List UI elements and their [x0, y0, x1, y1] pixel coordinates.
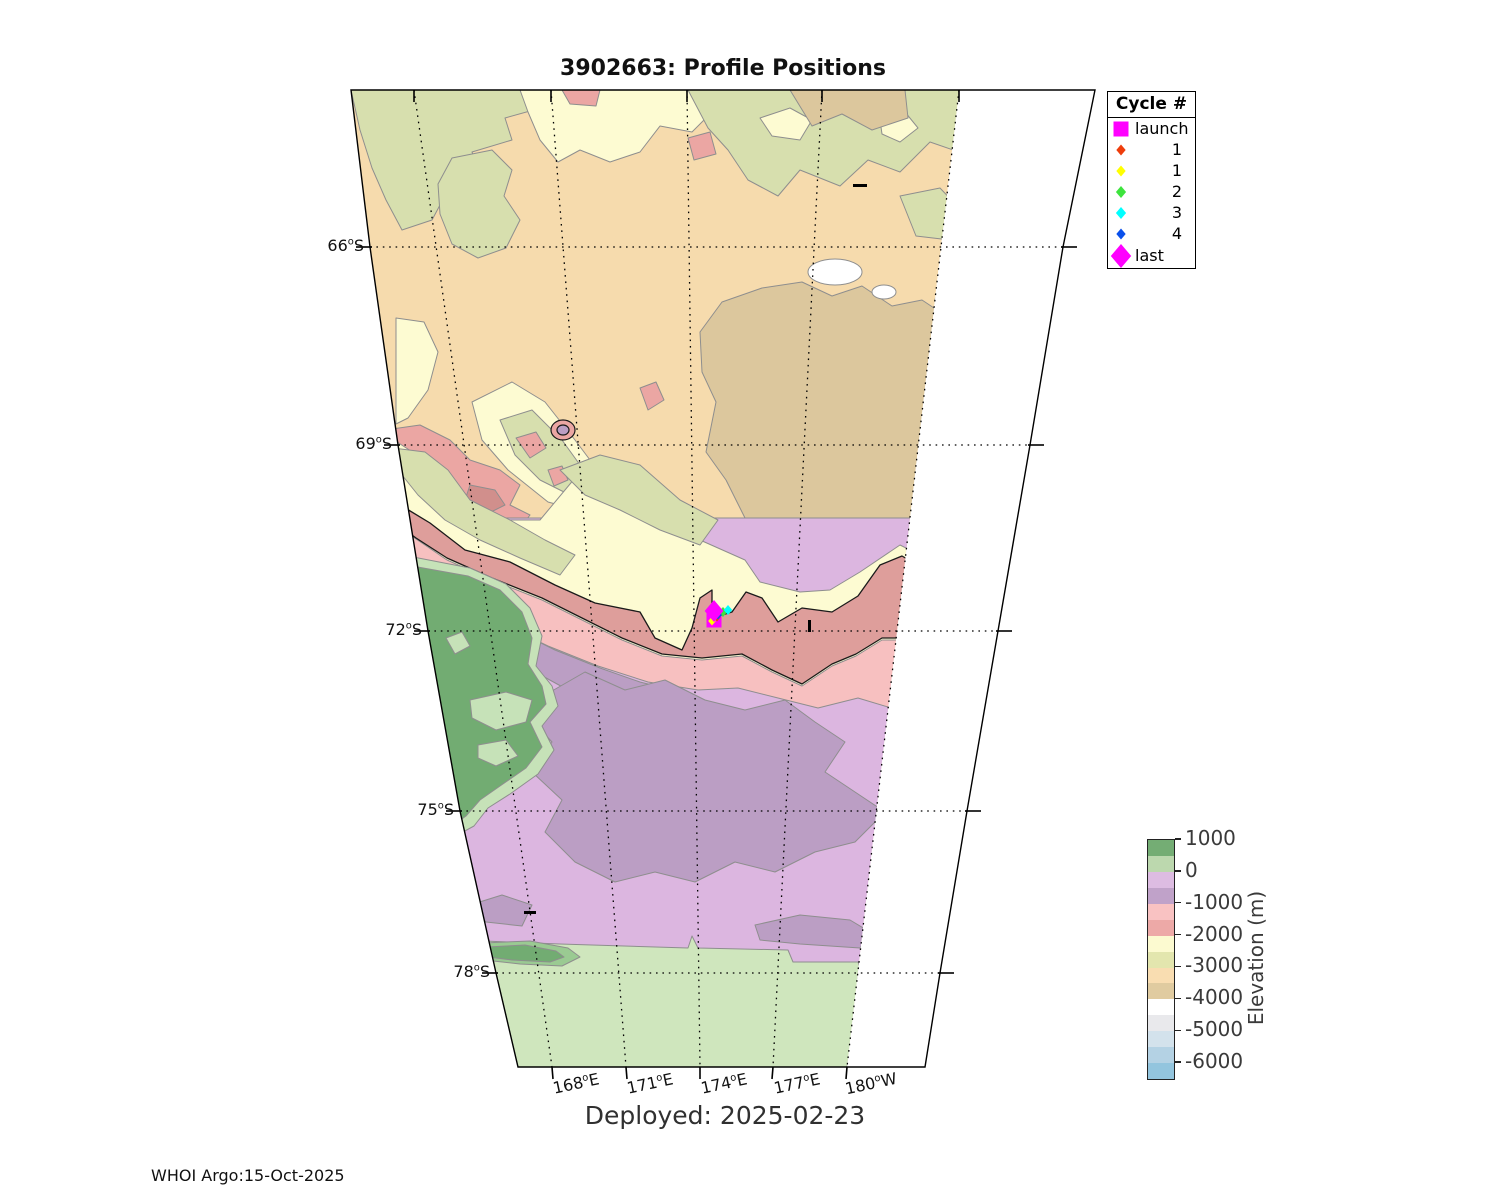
deployed-date-label: Deployed: 2025-02-23	[515, 1101, 935, 1130]
legend-item-launch: launch	[1108, 118, 1195, 139]
colorbar-tick	[1175, 902, 1181, 903]
legend-item-cycle-4-5: 4	[1108, 223, 1195, 244]
legend-item-label: 1	[1135, 142, 1195, 158]
colorbar-tick-label: -3000	[1185, 953, 1243, 977]
lat-tick-label-69S: 69oS	[312, 434, 392, 453]
colorbar-tick	[1175, 934, 1181, 935]
colorbar-segment	[1148, 999, 1174, 1015]
colorbar-axis-label: Elevation (m)	[1244, 891, 1268, 1025]
diamond-marker-icon	[1108, 161, 1135, 181]
colorbar-segment	[1148, 840, 1174, 856]
legend-item-label: 3	[1135, 205, 1195, 221]
diamond-marker-icon	[1108, 244, 1135, 268]
legend-item-cycle-1-2: 1	[1108, 160, 1195, 181]
colorbar-tick	[1175, 870, 1181, 871]
colorbar-segment	[1148, 888, 1174, 904]
colorbar-tick	[1175, 1061, 1181, 1062]
colorbar-tick	[1175, 966, 1181, 967]
lat-tick-label-75S: 75oS	[374, 800, 454, 819]
legend-item-last: last	[1108, 244, 1195, 268]
colorbar-tick-label: -5000	[1185, 1017, 1243, 1041]
colorbar-segment	[1148, 952, 1174, 968]
colorbar-tick-label: -1000	[1185, 890, 1243, 914]
legend-item-label: last	[1135, 248, 1195, 264]
cycle-legend: Cycle # launch11234last	[1107, 91, 1196, 269]
colorbar-tick-label: -6000	[1185, 1049, 1243, 1073]
credit-label: WHOI Argo:15-Oct-2025	[151, 1166, 345, 1185]
lat-tick-label-72S: 72oS	[342, 620, 422, 639]
square-marker-icon	[1108, 119, 1135, 139]
colorbar-tick-label: 0	[1185, 858, 1198, 882]
colorbar-tick	[1175, 998, 1181, 999]
legend-item-label: 1	[1135, 163, 1195, 179]
diamond-marker-icon	[1108, 140, 1135, 160]
colorbar-tick	[1175, 838, 1181, 839]
legend-item-cycle-2-3: 2	[1108, 181, 1195, 202]
elevation-colorbar	[1147, 839, 1175, 1080]
colorbar-segment	[1148, 983, 1174, 999]
colorbar-segment	[1148, 1031, 1174, 1047]
colorbar-segment	[1148, 904, 1174, 920]
colorbar-segment	[1148, 1015, 1174, 1031]
legend-item-cycle-3-4: 3	[1108, 202, 1195, 223]
legend-item-cycle-1-1: 1	[1108, 139, 1195, 160]
colorbar-segment	[1148, 872, 1174, 888]
colorbar-tick-label: 1000	[1185, 826, 1236, 850]
legend-item-label: 2	[1135, 184, 1195, 200]
colorbar-segment	[1148, 936, 1174, 952]
figure-title: 3902663: Profile Positions	[353, 56, 1093, 81]
colorbar-segment	[1148, 920, 1174, 936]
colorbar-segment	[1148, 856, 1174, 872]
colorbar-segment	[1148, 1047, 1174, 1063]
colorbar-segment	[1148, 968, 1174, 984]
figure-canvas: 3902663: Profile Positions Deployed: 202…	[0, 0, 1500, 1200]
diamond-marker-icon	[1108, 182, 1135, 202]
colorbar-tick-label: -2000	[1185, 922, 1243, 946]
legend-item-label: launch	[1135, 121, 1195, 137]
lat-tick-label-66S: 66oS	[284, 236, 364, 255]
colorbar-tick-label: -4000	[1185, 985, 1243, 1009]
diamond-marker-icon	[1108, 224, 1135, 244]
legend-items: launch11234last	[1108, 118, 1195, 268]
lat-tick-label-78S: 78oS	[410, 962, 490, 981]
colorbar-segment	[1148, 1063, 1174, 1079]
legend-item-label: 4	[1135, 226, 1195, 242]
map-plot	[0, 0, 1500, 1200]
diamond-marker-icon	[1108, 203, 1135, 223]
colorbar-tick	[1175, 1030, 1181, 1031]
legend-title: Cycle #	[1108, 92, 1195, 118]
